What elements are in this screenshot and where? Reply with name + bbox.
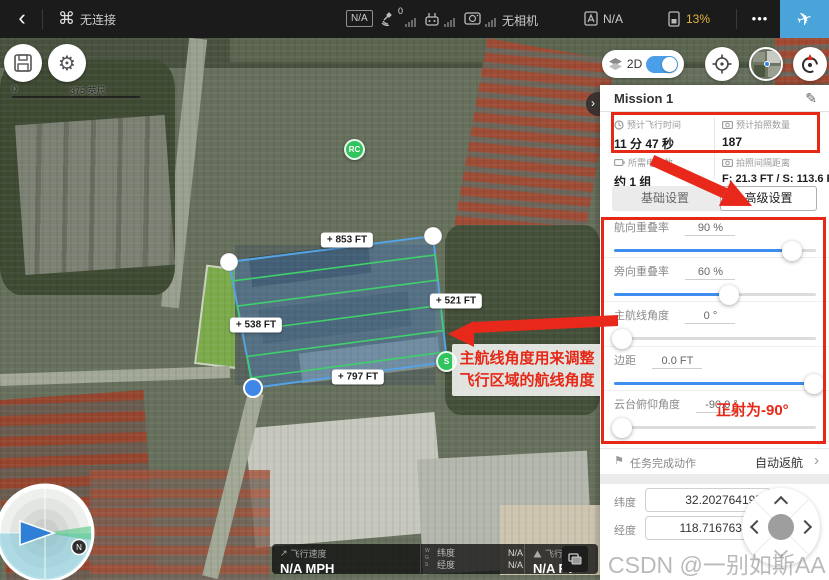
- edit-mission-name-button[interactable]: ✎: [805, 90, 817, 107]
- slider-label: 航向重叠率: [614, 219, 669, 235]
- compass-icon: [799, 53, 821, 75]
- slider-value-field[interactable]: 0 °: [685, 310, 735, 324]
- slider-side-overlap: 旁向重叠率 60 %: [614, 262, 816, 304]
- remote-controller-icon: [424, 11, 440, 26]
- rc-signal-bars: [444, 18, 455, 27]
- map-2d-toggle[interactable]: [646, 56, 678, 73]
- crosshair-icon: [712, 54, 732, 74]
- telemetry-gps: WGS 纬度N/A 经度N/A: [420, 544, 524, 574]
- finish-action-value: 自动返航: [755, 454, 803, 471]
- slider-front-overlap: 航向重叠率 90 %: [614, 218, 816, 260]
- photo-interval-icon: [722, 158, 733, 167]
- map-layers-icon: [568, 553, 582, 565]
- latitude-label: 纬度: [614, 494, 636, 510]
- speed-arrow-icon: ↗: [280, 548, 288, 559]
- slider-thumb[interactable]: [719, 285, 739, 305]
- mission-title: Mission 1: [614, 91, 673, 106]
- slider-thumb[interactable]: [612, 329, 632, 349]
- map-layer-toggle-button[interactable]: [562, 546, 588, 572]
- stat-photo-interval: 拍照间隔距离 F: 21.3 FT / S: 113.6 FT: [722, 156, 822, 185]
- slider-margin: 边距 0.0 FT: [614, 351, 816, 393]
- camera-signal-bars: [485, 18, 496, 27]
- flight-mode-badge: N/A: [346, 10, 373, 27]
- flight-mode-icon: [583, 10, 599, 27]
- app-window: + 853 FT + 521 FT + 538 FT + 797 FT RC S…: [0, 0, 829, 580]
- slider-label: 主航线角度: [614, 307, 669, 323]
- topbar-divider: [42, 9, 43, 29]
- more-menu-button[interactable]: •••: [742, 0, 778, 38]
- gear-icon: ⚙: [58, 51, 76, 76]
- back-button[interactable]: ‹: [6, 0, 38, 38]
- layers-icon: [608, 57, 623, 71]
- nudge-left-button[interactable]: [750, 520, 764, 534]
- aircraft-icon: ⌘: [58, 9, 75, 29]
- minimap-position-dot: [764, 61, 770, 67]
- mission-settings-button[interactable]: ⚙: [48, 44, 86, 82]
- finish-action-label: 任务完成动作: [630, 455, 696, 471]
- finish-action-row[interactable]: ⚑ 任务完成动作 自动返航 ›: [600, 448, 829, 472]
- map-scale-zero: 0: [12, 84, 17, 94]
- map-2d-label: 2D: [627, 57, 642, 71]
- locate-button[interactable]: [705, 47, 739, 81]
- nudge-down-button[interactable]: [774, 544, 788, 558]
- rc-location-marker: RC: [344, 139, 365, 160]
- slider-track[interactable]: [614, 337, 816, 340]
- slider-track[interactable]: [614, 249, 816, 252]
- stat-battery-count: 所需电池数 约 1 组: [614, 156, 714, 190]
- map-scale-bar: [12, 96, 140, 98]
- annotation-gimbal-note: 正射为-90°: [716, 399, 789, 420]
- takeoff-button[interactable]: ✈: [780, 0, 829, 38]
- slider-track[interactable]: [614, 293, 816, 296]
- gps-count: 0: [398, 6, 403, 16]
- stats-divider: [714, 117, 715, 179]
- top-status-bar: ‹ ⌘ 无连接 N/A 0 无相机: [0, 0, 829, 38]
- edge-length-label-bottom[interactable]: + 797 FT: [332, 370, 384, 385]
- aircraft-connection-status: 无连接: [80, 11, 116, 28]
- edge-length-label-top[interactable]: + 853 FT: [321, 233, 373, 248]
- battery-icon: [614, 158, 625, 167]
- device-battery-percent: 13%: [686, 12, 710, 26]
- compass-orientation-button[interactable]: [793, 47, 827, 81]
- panel-header: Mission 1 ✎: [600, 85, 829, 112]
- chevron-right-icon: ›: [814, 452, 819, 469]
- tab-advanced-settings[interactable]: 高级设置: [720, 186, 817, 211]
- flight-telemetry-bar: ↗飞行速度 N/A MPH WGS 纬度N/A 经度N/A 飞行高度 N/A F…: [272, 544, 598, 574]
- camera-icon: [722, 120, 733, 129]
- annotation-tooltip-route-angle: 主航线角度用来调整 飞行区域的航线角度: [452, 344, 602, 396]
- edge-length-label-right[interactable]: + 521 FT: [430, 294, 482, 309]
- slider-thumb[interactable]: [804, 374, 824, 394]
- gps-signal-bars: [405, 18, 416, 27]
- altitude-icon: [533, 550, 542, 558]
- slider-track[interactable]: [614, 382, 816, 385]
- save-mission-button[interactable]: [4, 44, 42, 82]
- slider-track[interactable]: [614, 426, 816, 429]
- telemetry-speed: ↗飞行速度 N/A MPH: [272, 544, 420, 574]
- stat-photo-count: 预计拍照数量 187: [722, 118, 822, 149]
- clock-icon: [614, 120, 624, 130]
- position-nudge-dpad: [742, 488, 820, 566]
- minimap-button[interactable]: [749, 47, 783, 81]
- camera-icon: [464, 11, 481, 25]
- camera-status: 无相机: [502, 12, 538, 29]
- slider-value-field[interactable]: 60 %: [685, 266, 735, 280]
- takeoff-plane-icon: ✈: [791, 0, 817, 39]
- wgs-label: WGS: [425, 548, 430, 569]
- flag-icon: ⚑: [614, 454, 624, 467]
- slider-value-field[interactable]: 0.0 FT: [652, 355, 702, 369]
- nudge-up-button[interactable]: [774, 496, 788, 510]
- slider-route-angle: 主航线角度 0 °: [614, 306, 816, 348]
- north-label: N: [76, 543, 82, 552]
- topbar-divider: [736, 9, 737, 29]
- section-divider: [600, 474, 829, 484]
- tab-basic-settings[interactable]: 基础设置: [612, 186, 718, 211]
- slider-value-field[interactable]: 90 %: [685, 222, 735, 236]
- row-separator: [600, 441, 829, 442]
- gps-satellite-icon: [381, 11, 396, 26]
- mission-settings-panel: Mission 1 ✎ 预计飞行时间 11 分 47 秒 预计拍照数量 187 …: [600, 85, 829, 580]
- attitude-compass-widget[interactable]: N: [0, 482, 96, 580]
- edge-length-label-left[interactable]: + 538 FT: [230, 318, 282, 333]
- device-battery-icon: [667, 10, 681, 27]
- save-icon: [13, 53, 33, 73]
- rc-mode-value: N/A: [603, 12, 623, 26]
- map-mode-pill: 2D: [602, 50, 684, 78]
- settings-tabs: 基础设置 高级设置: [612, 186, 817, 211]
- nudge-center-button[interactable]: [768, 514, 794, 540]
- slider-label: 旁向重叠率: [614, 263, 669, 279]
- stat-flight-time: 预计飞行时间 11 分 47 秒: [614, 118, 714, 152]
- slider-label: 云台俯仰角度: [614, 396, 680, 412]
- longitude-label: 经度: [614, 522, 636, 538]
- slider-label: 边距: [614, 352, 636, 368]
- slider-thumb[interactable]: [612, 418, 632, 438]
- slider-thumb[interactable]: [782, 241, 802, 261]
- nudge-right-button[interactable]: [798, 520, 812, 534]
